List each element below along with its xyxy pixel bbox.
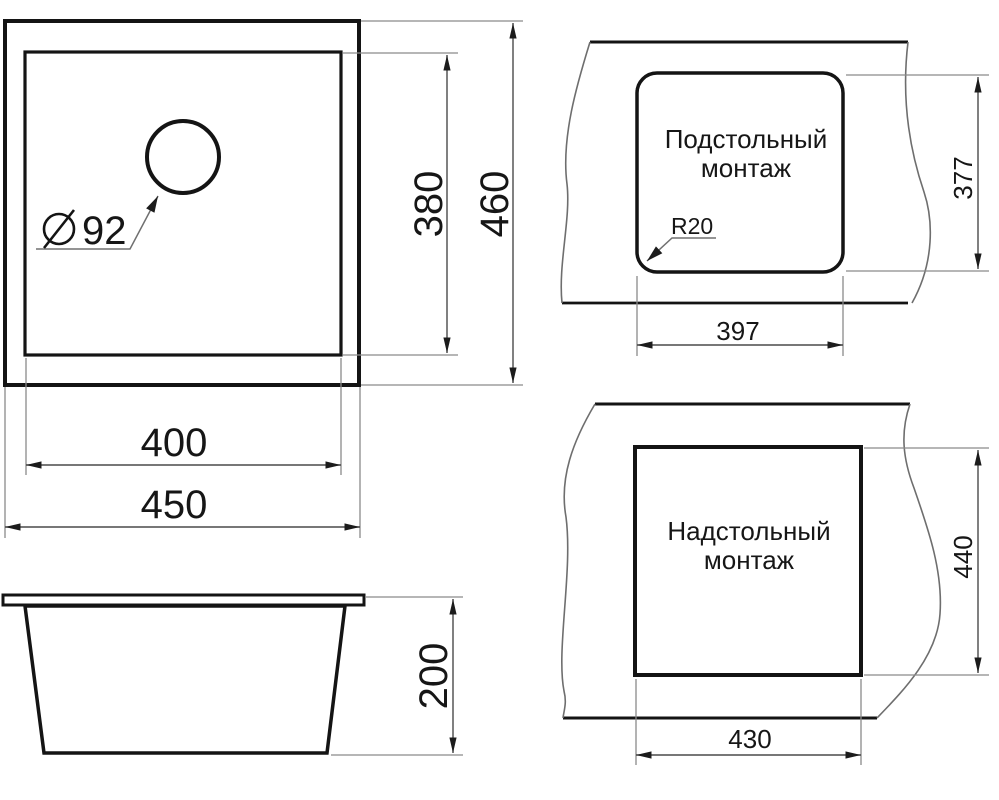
dim-overmount-width: 430 [636,679,861,765]
dim-height: 200 [331,597,463,755]
dim-outer-depth-value: 460 [473,171,517,238]
countertop-break-line-left-2 [562,404,595,718]
corner-radius-value: R20 [671,213,713,239]
dim-outer-width-value: 450 [141,483,208,527]
side-view: 200 [3,595,463,755]
sink-technical-drawing: 92 380 460 400 450 [0,0,999,800]
undermount-view: Подстольный монтаж R20 377 397 [561,42,989,356]
sink-rim-profile [3,595,364,605]
dim-inner-depth-value: 380 [407,171,451,238]
sink-technical-drawing-page: 92 380 460 400 450 [0,0,999,800]
countertop-break-line-left [561,42,590,303]
countertop-break-line-right-2 [877,404,940,718]
dim-height-value: 200 [412,643,456,710]
countertop-break-line-right [906,42,931,303]
top-view: 92 380 460 400 450 [5,21,523,538]
sink-body-profile [25,606,345,753]
drain-diameter-value: 92 [82,209,127,253]
overmount-title-line1: Надстольный [667,516,830,546]
dim-undermount-height-value: 377 [948,156,978,199]
dim-undermount-width: 397 [637,276,843,356]
overmount-title-line2: монтаж [704,545,795,575]
dim-undermount-width-value: 397 [716,316,759,346]
overmount-view: Надстольный монтаж 440 430 [562,404,989,765]
dim-overmount-height: 440 [864,448,989,675]
undermount-title-line2: монтаж [701,153,792,183]
dim-inner-width-value: 400 [141,421,208,465]
undermount-title-line1: Подстольный [665,124,828,154]
sink-bowl-outline [25,52,341,355]
dim-overmount-height-value: 440 [948,535,978,578]
dim-overmount-width-value: 430 [728,724,771,754]
